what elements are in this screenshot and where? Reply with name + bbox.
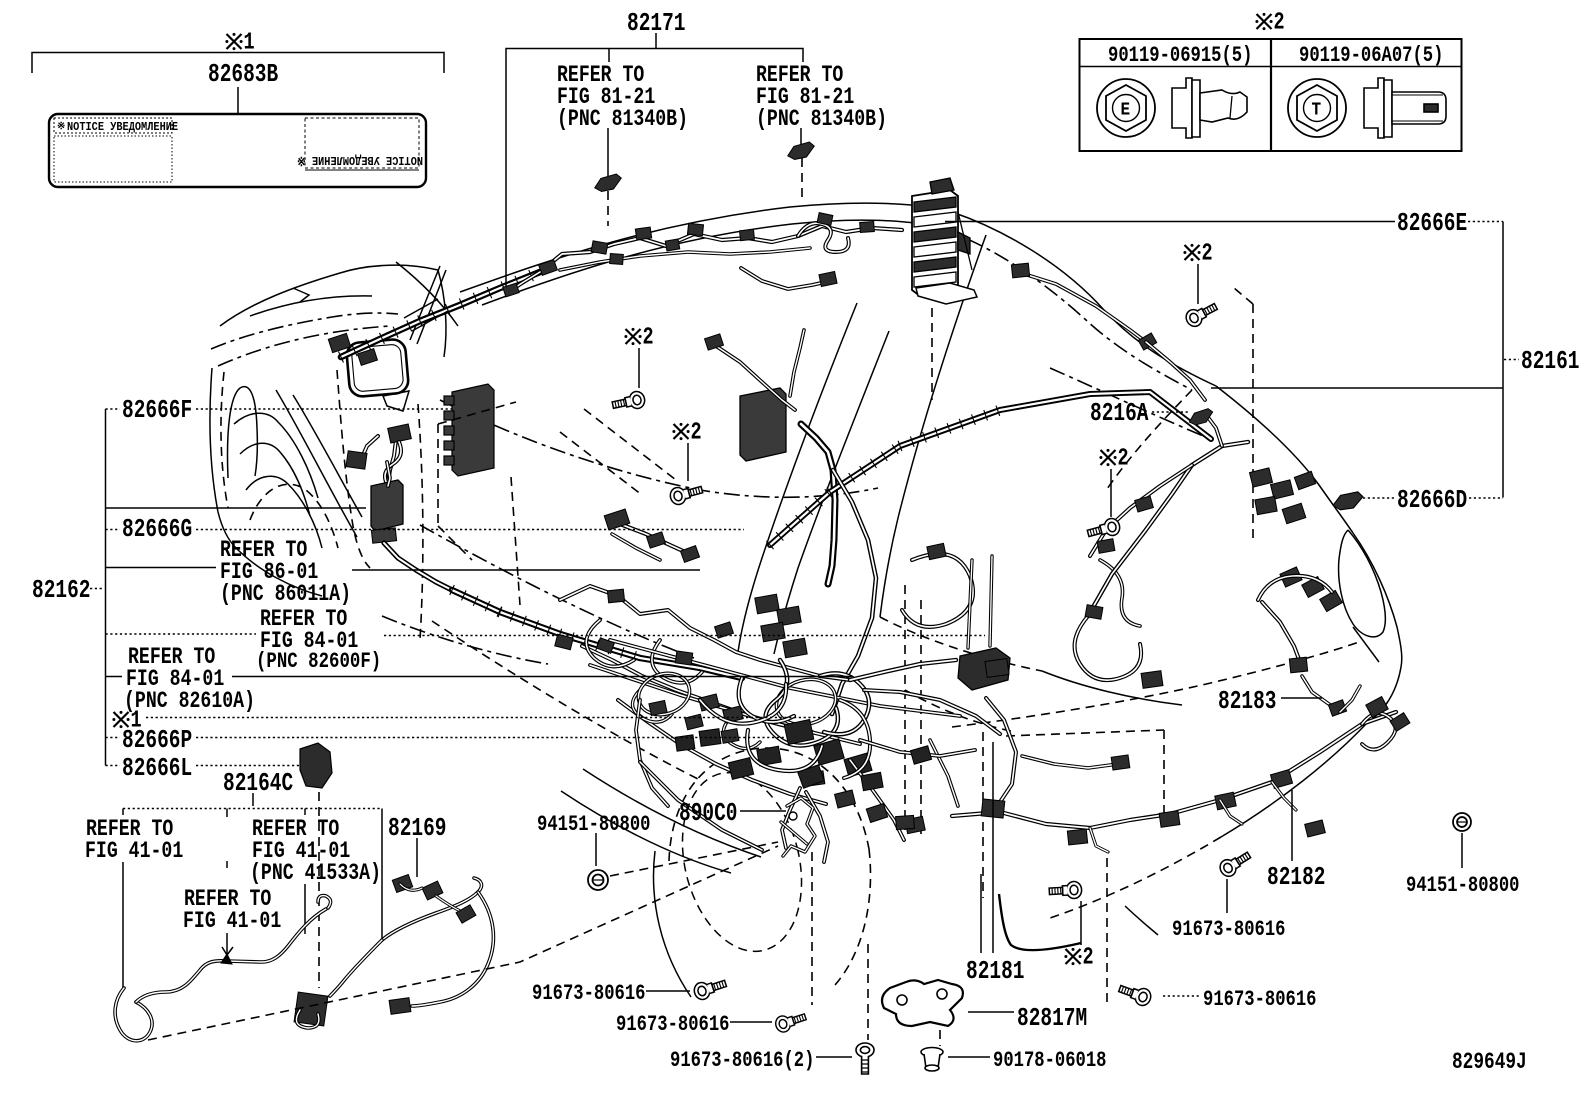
svg-text:(PNC 82600F): (PNC 82600F) xyxy=(256,649,381,673)
svg-text:(PNC 81340B): (PNC 81340B) xyxy=(756,107,887,133)
svg-text:90119-06A07(5): 90119-06A07(5) xyxy=(1299,42,1443,68)
svg-text:NOTICE УВЕДОМЛЕНИЕ ※: NOTICE УВЕДОМЛЕНИЕ ※ xyxy=(297,153,423,167)
svg-text:94151-80800: 94151-80800 xyxy=(1406,872,1519,898)
svg-text:82666F: 82666F xyxy=(122,395,192,424)
svg-text:82162: 82162 xyxy=(32,575,90,604)
svg-text:829649J: 829649J xyxy=(1452,1050,1527,1076)
svg-text:91673-80616: 91673-80616 xyxy=(1172,916,1285,942)
svg-text:82666G: 82666G xyxy=(122,514,192,543)
svg-text:82683B: 82683B xyxy=(208,59,278,88)
svg-text:2: 2 xyxy=(691,419,702,446)
svg-text:82817M: 82817M xyxy=(1017,1003,1087,1032)
svg-text:T: T xyxy=(1312,101,1322,121)
svg-text:(PNC 41533A): (PNC 41533A) xyxy=(250,861,381,887)
svg-text:2: 2 xyxy=(1202,240,1213,267)
svg-text:(PNC 86011A): (PNC 86011A) xyxy=(220,582,351,608)
svg-text:90119-06915(5): 90119-06915(5) xyxy=(1108,42,1252,68)
svg-text:82161: 82161 xyxy=(1521,346,1579,375)
svg-text:(PNC 81340B): (PNC 81340B) xyxy=(557,107,688,133)
svg-text:2: 2 xyxy=(1274,9,1285,36)
svg-text:94151-80800: 94151-80800 xyxy=(537,811,650,837)
svg-text:91673-80616: 91673-80616 xyxy=(532,980,645,1006)
svg-text:82666D: 82666D xyxy=(1397,485,1467,514)
svg-text:82181: 82181 xyxy=(966,956,1024,985)
svg-text:82666E: 82666E xyxy=(1397,208,1467,237)
svg-text:2: 2 xyxy=(643,324,654,351)
svg-text:FIG 41-01: FIG 41-01 xyxy=(183,909,281,935)
svg-text:FIG 41-01: FIG 41-01 xyxy=(85,839,183,865)
svg-text:91673-80616: 91673-80616 xyxy=(1203,986,1316,1012)
svg-text:90178-06018: 90178-06018 xyxy=(993,1047,1106,1073)
svg-text:91673-80616: 91673-80616 xyxy=(616,1011,729,1037)
svg-text:2: 2 xyxy=(1118,445,1129,472)
svg-text:8216A: 8216A xyxy=(1090,398,1149,427)
svg-text:82164C: 82164C xyxy=(223,768,293,797)
svg-text:(PNC 82610A): (PNC 82610A) xyxy=(124,689,255,715)
svg-text:91673-80616(2): 91673-80616(2) xyxy=(670,1047,814,1073)
svg-text:82666P: 82666P xyxy=(122,725,192,754)
svg-text:E: E xyxy=(1121,101,1131,121)
svg-text:82183: 82183 xyxy=(1218,686,1276,715)
svg-text:2: 2 xyxy=(1083,944,1094,971)
svg-text:82182: 82182 xyxy=(1267,862,1325,891)
svg-text:※: ※ xyxy=(57,121,65,133)
svg-text:82666L: 82666L xyxy=(122,753,192,782)
svg-text:890C0: 890C0 xyxy=(679,798,737,827)
svg-text:NOTICE УВЕДОМЛЕНИЕ: NOTICE УВЕДОМЛЕНИЕ xyxy=(67,121,178,134)
